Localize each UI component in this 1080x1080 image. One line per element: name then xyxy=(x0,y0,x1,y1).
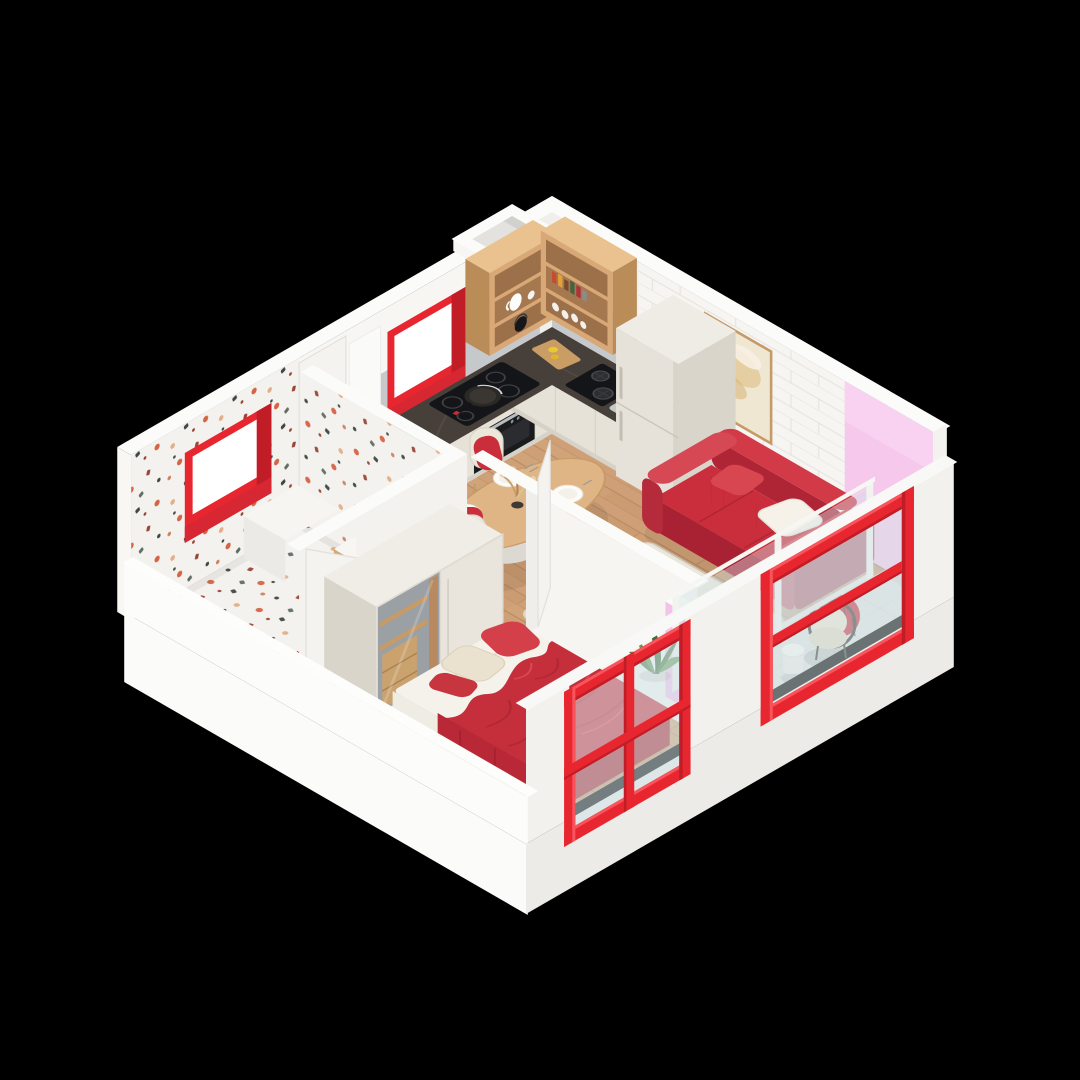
floorplan-canvas xyxy=(0,0,1080,1080)
isometric-apartment-render xyxy=(0,0,1080,1080)
